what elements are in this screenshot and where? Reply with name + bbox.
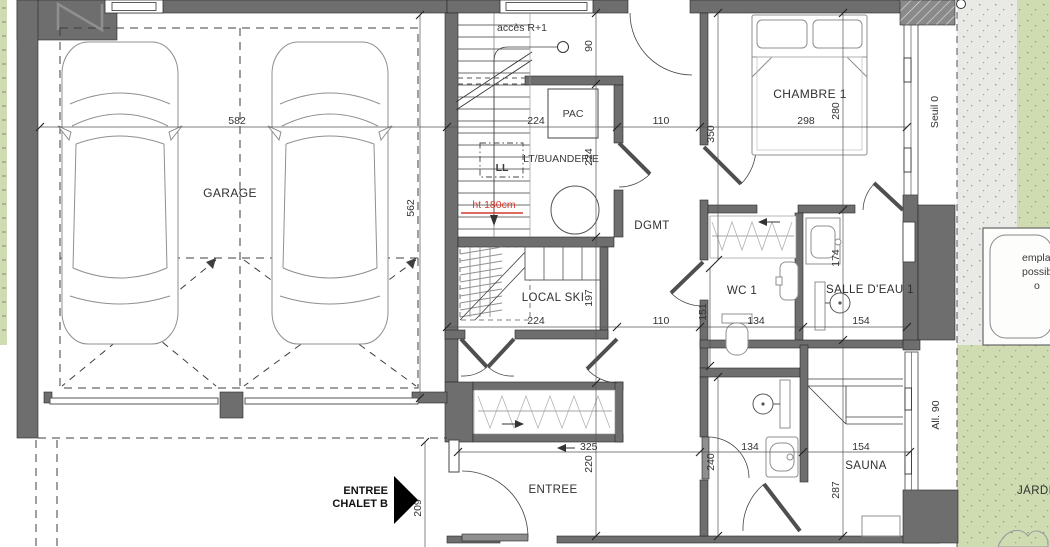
dim-bathroom-width: 154 bbox=[852, 315, 870, 327]
bathroom-fixtures bbox=[806, 218, 850, 330]
label-laundry: LT/BUANDERIE bbox=[523, 153, 599, 165]
dim-hall-width-mid: 110 bbox=[653, 315, 670, 327]
dim-hall-width-top: 110 bbox=[653, 115, 670, 127]
toilet-bowl bbox=[726, 323, 748, 355]
wc-faucet-icon bbox=[776, 277, 782, 285]
front-door-leaf bbox=[462, 534, 528, 541]
shower-room-fixtures bbox=[753, 380, 798, 477]
shower-column bbox=[815, 282, 825, 330]
dim-sauna-depth: 287 bbox=[830, 481, 842, 499]
spa-emplacement: emplace possible o bbox=[983, 228, 1050, 345]
threshold-note: Seuil 0 bbox=[929, 96, 941, 128]
dim-stair-top: 90 bbox=[583, 40, 595, 52]
label-hallway: DGMT bbox=[634, 220, 669, 232]
label-garage: GARAGE bbox=[203, 186, 257, 200]
entry-closet bbox=[474, 390, 615, 434]
garage-zone bbox=[36, 4, 447, 547]
vanity-faucet-icon bbox=[835, 239, 841, 245]
spa-text-line3: o bbox=[1034, 280, 1040, 292]
dim-shower-room-depth: 240 bbox=[705, 453, 717, 471]
dim-bedroom-depth: 280 bbox=[830, 102, 842, 120]
label-pac: PAC bbox=[563, 108, 584, 120]
wc-sink bbox=[780, 262, 798, 300]
label-entrance: ENTREE bbox=[528, 484, 577, 496]
label-washer: LL bbox=[496, 162, 509, 174]
garden-strip-left bbox=[0, 0, 7, 345]
lower-flight bbox=[460, 247, 530, 320]
spa-text-line2: possible bbox=[1022, 266, 1050, 278]
dim-entrance-width: 325 bbox=[580, 441, 598, 453]
dim-shower-room-width: 134 bbox=[741, 441, 759, 453]
dim-wc-width: 134 bbox=[747, 315, 765, 327]
entrance-marker-text1: ENTREE bbox=[343, 485, 388, 497]
staircase bbox=[456, 13, 600, 320]
label-garden: JARDIN bbox=[1017, 485, 1050, 497]
sauna-stove bbox=[862, 516, 900, 536]
dim-garage-width: 582 bbox=[228, 115, 246, 127]
dim-bedroom-width: 298 bbox=[797, 115, 815, 127]
dim-laundry-zone-width: 224 bbox=[527, 115, 545, 127]
label-bathroom1: SALLE D'EAU 1 bbox=[826, 284, 914, 296]
dim-bedroom-hall-depth: 350 bbox=[705, 125, 717, 143]
dim-sauna-width: 154 bbox=[852, 441, 870, 453]
label-ski-room: LOCAL SKI bbox=[522, 292, 585, 304]
shower-column-2 bbox=[780, 380, 790, 428]
bedroom-closet bbox=[710, 216, 796, 258]
dim-ski-width: 224 bbox=[527, 315, 545, 327]
hatched-wall-corner bbox=[900, 0, 955, 25]
bathroom-window bbox=[903, 222, 915, 262]
height-note: ht 180cm bbox=[472, 199, 515, 211]
spa-text-line1: emplace bbox=[1022, 252, 1050, 264]
label-wc1: WC 1 bbox=[727, 285, 757, 297]
dim-wc-depth: 151 bbox=[697, 303, 709, 321]
pillow-right bbox=[813, 20, 862, 48]
floor-plan-canvas: emplace possible o bbox=[0, 0, 1050, 547]
entrance-marker-text2: CHALET B bbox=[332, 498, 388, 510]
driveway-lines bbox=[36, 440, 57, 547]
entrance-marker: ENTREE CHALET B bbox=[332, 476, 418, 524]
car-right bbox=[268, 42, 392, 344]
survey-point-icon bbox=[957, 0, 966, 9]
ski-lockers bbox=[525, 247, 600, 280]
car-left bbox=[58, 42, 182, 344]
bedroom-furniture bbox=[752, 15, 867, 155]
floor-plan: emplace possible o bbox=[0, 0, 1050, 547]
boiler-icon bbox=[551, 186, 599, 234]
walk-line-start bbox=[558, 42, 569, 53]
dim-ski-depth: 197 bbox=[583, 289, 595, 307]
label-bedroom1: CHAMBRE 1 bbox=[773, 87, 847, 101]
label-stairs-access: accès R+1 bbox=[497, 22, 547, 34]
sill-note: All. 90 bbox=[930, 400, 942, 429]
pillow-left bbox=[757, 20, 807, 48]
dim-garage-depth: 562 bbox=[405, 199, 417, 217]
sauna-furniture bbox=[808, 379, 903, 536]
dim-entrance-depth: 220 bbox=[583, 455, 595, 473]
dim-bathroom-depth: 174 bbox=[830, 249, 842, 267]
sauna-benches bbox=[808, 379, 903, 424]
washbasin-faucet-icon bbox=[787, 454, 793, 460]
label-sauna: SAUNA bbox=[845, 460, 887, 472]
